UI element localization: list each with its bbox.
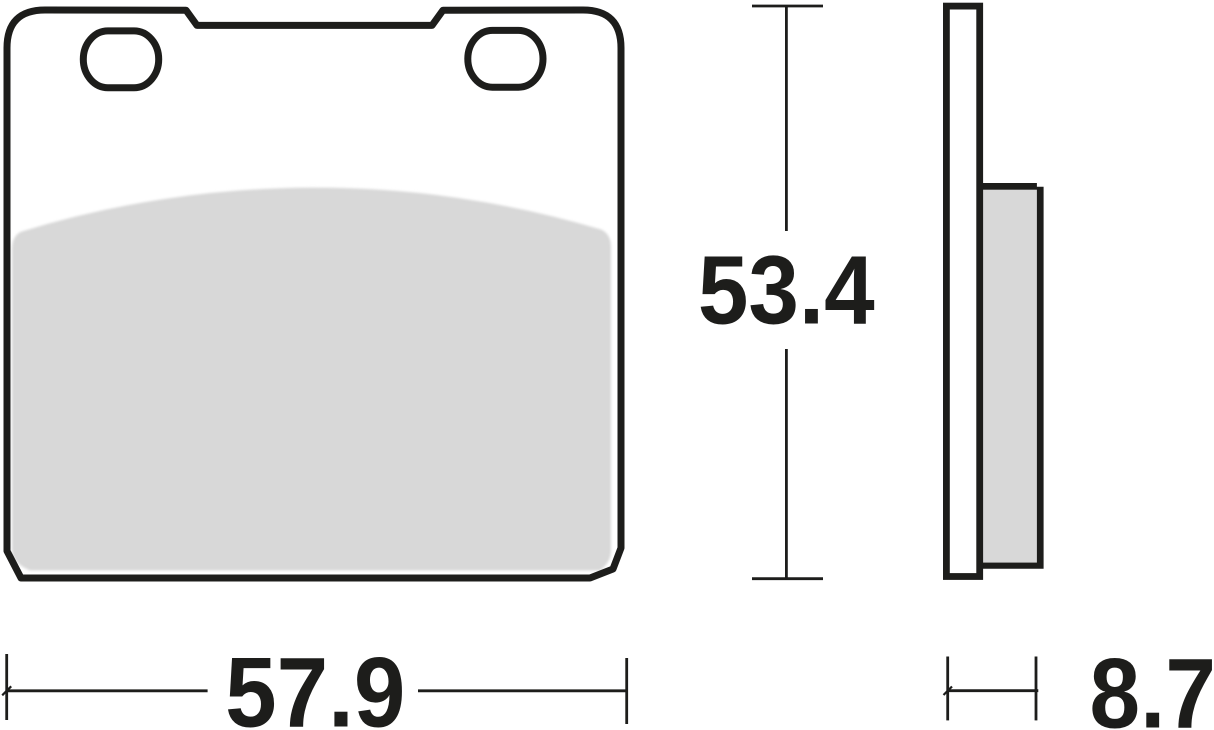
svg-text:8.7: 8.7 — [1090, 638, 1214, 730]
svg-text:57.9: 57.9 — [225, 637, 405, 730]
svg-text:53.4: 53.4 — [698, 235, 875, 344]
